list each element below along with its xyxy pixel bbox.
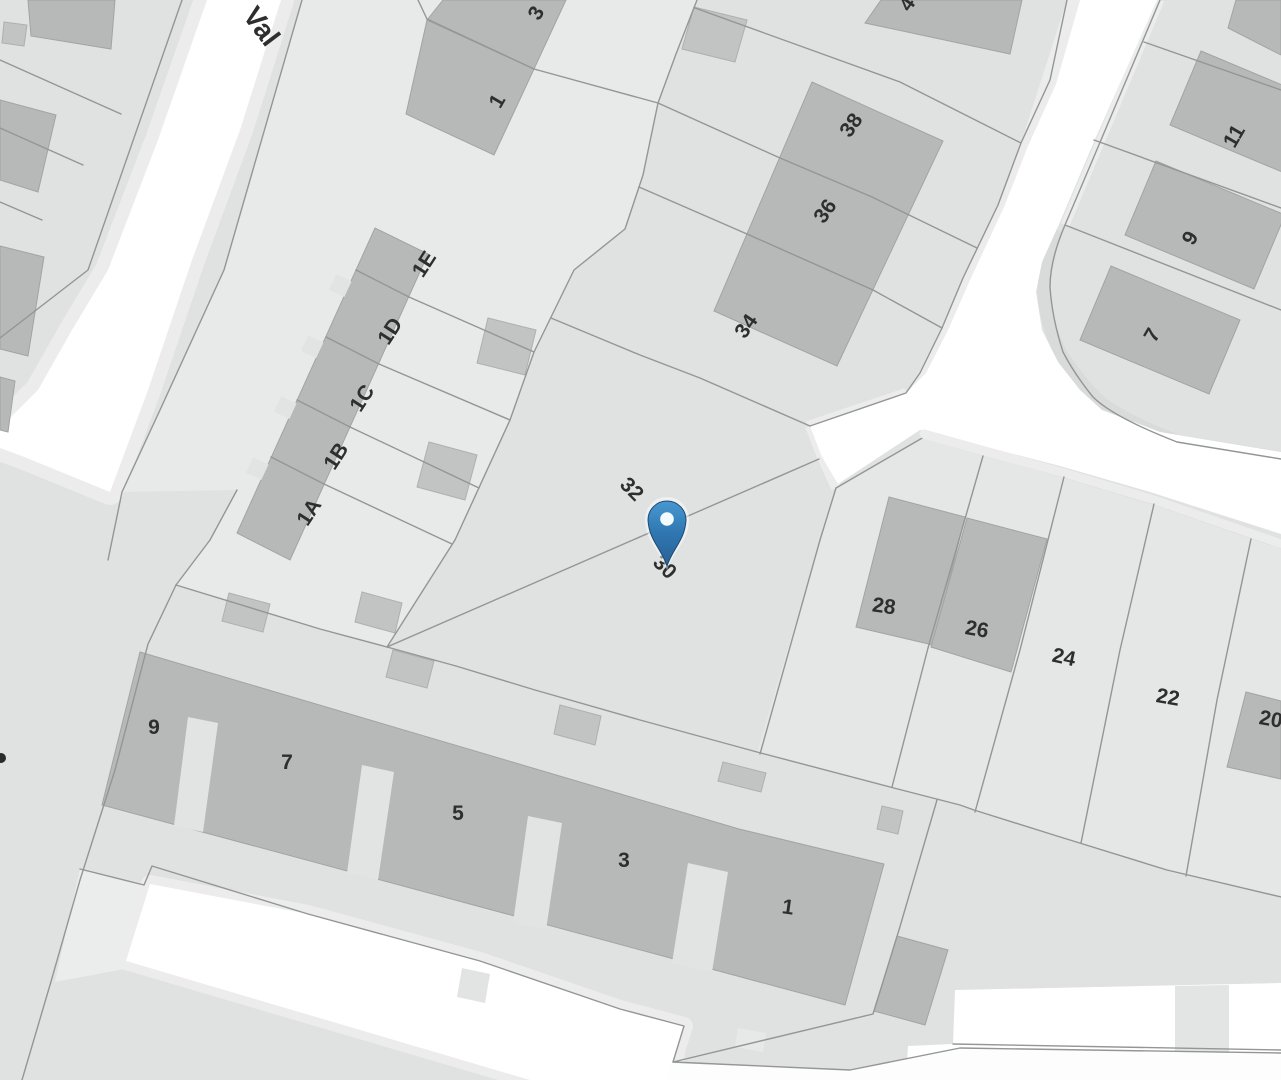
svg-text:9: 9 [148,716,160,739]
svg-text:7: 7 [281,751,293,774]
svg-text:22: 22 [1154,684,1181,711]
svg-text:26: 26 [963,616,990,643]
svg-text:5: 5 [452,802,464,825]
svg-text:3: 3 [618,849,630,872]
svg-text:20: 20 [1257,706,1281,733]
svg-text:28: 28 [871,593,898,619]
